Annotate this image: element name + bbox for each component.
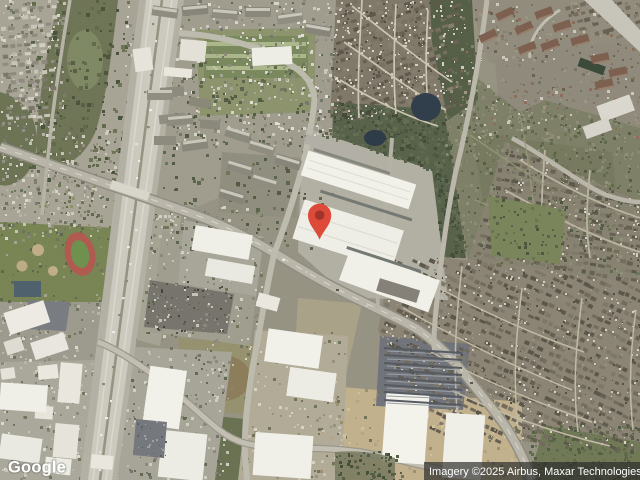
svg-text:Imagery ©2025 Airbus, Maxar Te: Imagery ©2025 Airbus, Maxar Technologies <box>429 466 640 478</box>
svg-text:Google: Google <box>8 459 66 477</box>
